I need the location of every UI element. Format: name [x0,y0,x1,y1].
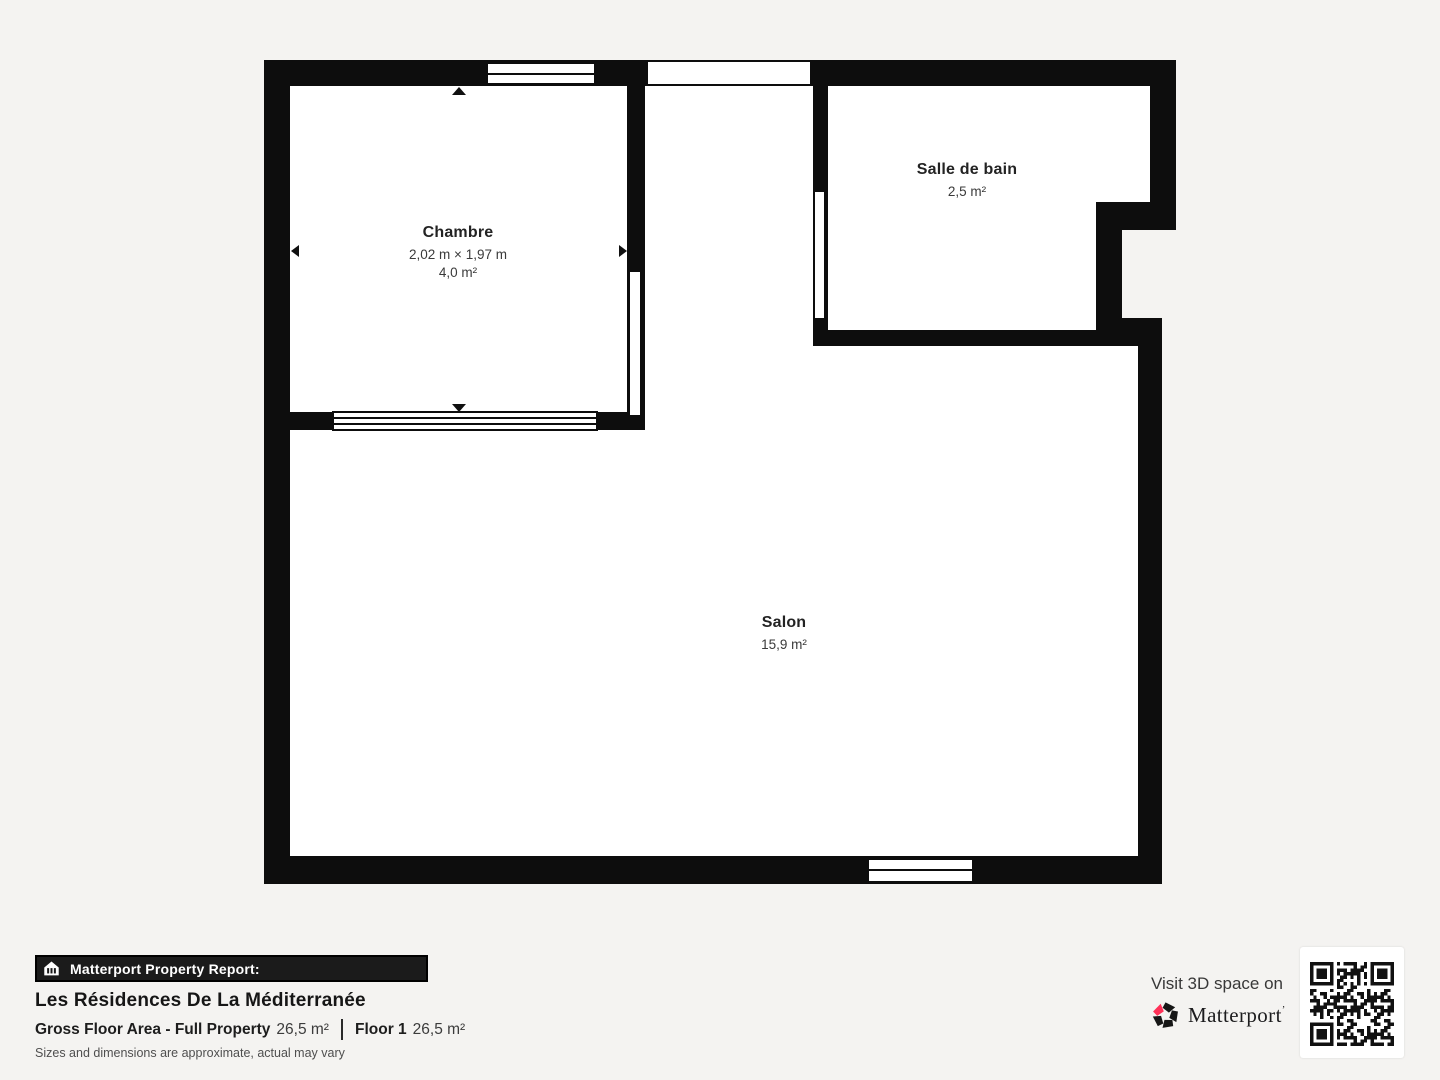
floor-plan: Chambre 2,02 m × 1,97 m 4,0 m² Salle de … [0,0,1440,920]
window-pane-divider [334,423,596,425]
wall-left [264,60,290,884]
room-label-salon: Salon 15,9 m² [654,614,914,653]
visit-3d-space-text: Visit 3D space on [1151,974,1283,994]
matterport-wordmark: Matterport’ [1188,1003,1286,1028]
gross-floor-area-label: Gross Floor Area - Full Property [35,1021,270,1039]
room-label-chambre: Chambre 2,02 m × 1,97 m 4,0 m² [328,224,588,281]
wall-bottom [264,856,1162,884]
building-icon [42,959,61,978]
window-pane-divider [334,417,596,419]
room-label-salle-de-bain: Salle de bain 2,5 m² [837,161,1097,200]
room-area: 4,0 m² [328,265,588,281]
gross-floor-area-value: 26,5 m² [276,1021,329,1039]
chambre-bottom-window [332,411,598,431]
matterport-property-report-page: Chambre 2,02 m × 1,97 m 4,0 m² Salle de … [0,0,1440,1080]
window-pane-divider [869,869,972,871]
trademark-tick: ’ [1282,1005,1286,1016]
property-name: Les Résidences De La Méditerranée [35,990,366,1012]
room-name: Chambre [328,224,588,242]
info-divider [341,1019,343,1040]
disclaimer-text: Sizes and dimensions are approximate, ac… [35,1046,345,1060]
exterior-right-strip [1162,318,1176,884]
matterport-logo: Matterport’ [1150,1000,1286,1031]
chambre-top-window [486,62,596,85]
bathroom-door [815,192,824,318]
dimension-arrow-up-icon [452,87,466,95]
room-name: Salon [654,614,914,632]
salon-bottom-window [867,858,974,883]
room-dimensions: 2,02 m × 1,97 m [328,247,588,263]
dimension-arrow-down-icon [452,404,466,412]
room-area: 2,5 m² [837,184,1097,200]
qr-code [1310,962,1394,1046]
report-banner-label: Matterport Property Report: [70,961,260,977]
report-banner: Matterport Property Report: [35,955,428,982]
dimension-arrow-left-icon [291,245,299,257]
matterport-pinwheel-icon [1150,1000,1181,1031]
qr-card [1300,947,1404,1058]
exterior-notch [1122,230,1176,318]
wall-bathroom-bottom [813,330,1122,346]
chambre-door [630,272,640,415]
wall-notch-left [1096,202,1122,346]
room-name: Salle de bain [837,161,1097,179]
room-area: 15,9 m² [654,637,914,653]
area-info-row: Gross Floor Area - Full Property 26,5 m²… [35,1019,465,1040]
floor-label: Floor 1 [355,1021,407,1039]
window-pane-divider [488,73,594,75]
entry-opening [648,62,810,84]
floor-value: 26,5 m² [413,1021,466,1039]
wall-right-salon [1138,318,1162,884]
dimension-arrow-right-icon [619,245,627,257]
